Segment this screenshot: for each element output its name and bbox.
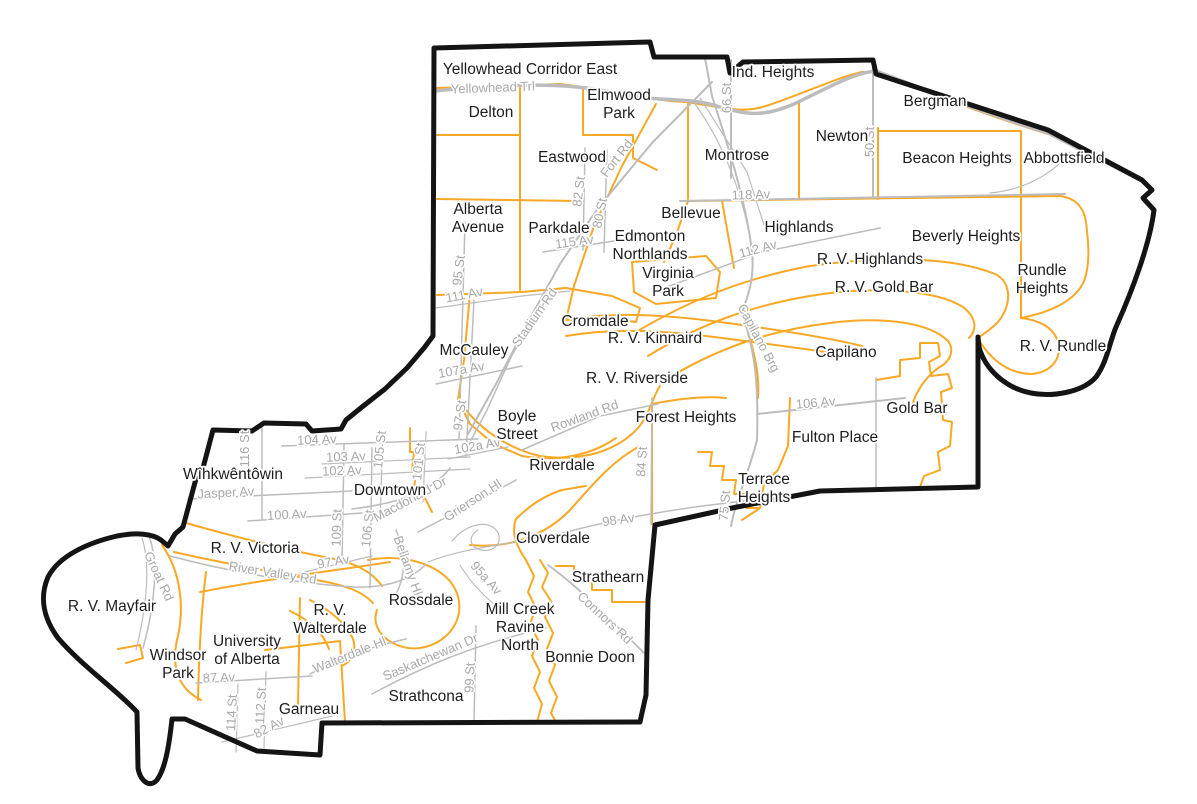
neighborhood-label: Mill CreekRavineNorth	[486, 601, 555, 654]
road-label: 116 St	[237, 430, 252, 467]
neighborhood-label: Parkdale	[528, 220, 589, 237]
road-label: Yellowhead Trl	[451, 79, 536, 97]
neighborhood-label: R. V.Walterdale	[293, 602, 367, 637]
neighborhood-label: Capilano	[815, 344, 876, 361]
neighborhood-boundary-line	[652, 397, 726, 404]
neighborhood-label: Rossdale	[389, 592, 454, 609]
road-label: 109 St	[328, 508, 344, 546]
neighborhood-label: R. V. Highlands	[817, 251, 924, 268]
neighborhood-label: VirginiaPark	[642, 265, 694, 300]
neighborhood-boundary-line	[118, 645, 143, 663]
road-label: 99 St	[461, 662, 478, 693]
neighborhood-label: Gold Bar	[886, 400, 947, 417]
neighborhood-label: Bergman	[904, 93, 967, 110]
neighborhood-label: Cloverdale	[516, 530, 590, 547]
neighborhood-label: Yellowhead Corridor East	[443, 61, 618, 78]
neighborhood-label: Cromdale	[561, 313, 628, 330]
neighborhood-boundary-line	[566, 104, 656, 320]
neighborhood-label: Beacon Heights	[902, 150, 1012, 167]
neighborhood-label: R. V. Gold Bar	[835, 279, 934, 296]
road-label: Rowland Rd	[549, 397, 621, 435]
road-label: 98 Av	[601, 510, 636, 529]
road-label: 84 St	[633, 446, 650, 478]
road-label: 66 St	[719, 82, 734, 113]
neighborhood-label: EdmontonNorthlands	[613, 228, 688, 263]
road-label: Bellamy Hl	[391, 534, 426, 598]
neighborhood-label: R. V. Riverside	[586, 370, 688, 387]
road-label: 95a Av	[468, 558, 506, 598]
road-label: 105 St	[370, 430, 389, 469]
road-label: 118 Av	[731, 186, 771, 202]
neighborhood-label: Bellevue	[661, 205, 720, 222]
neighborhood-label: TerraceHeights	[738, 471, 791, 506]
edmonton-neighbourhood-map: Yellowhead Trl66 StFort Rd50 St118 Av82 …	[0, 0, 1197, 804]
road-label: River Valley Rd	[228, 558, 318, 587]
road-label: Walterdale Hl	[311, 633, 389, 676]
neighborhood-label: Forest Heights	[636, 409, 737, 426]
neighborhood-label: McCauley	[440, 342, 509, 359]
neighborhood-label: Delton	[469, 104, 514, 121]
road-label: Grierson Hl	[441, 476, 504, 524]
neighborhood-label: Ind. Heights	[732, 64, 815, 81]
neighborhood-label: Beverly Heights	[912, 228, 1021, 245]
neighborhood-label: Newton	[816, 128, 869, 145]
neighborhood-label: R. V. Mayfair	[68, 598, 156, 615]
map-canvas: Yellowhead Trl66 StFort Rd50 St118 Av82 …	[0, 0, 1197, 804]
neighborhood-boundary-line	[298, 598, 300, 706]
road-label: 100 Av	[267, 506, 308, 523]
neighborhood-boundary-line	[913, 368, 938, 403]
road-label: 114 St	[223, 694, 240, 732]
neighborhood-label: Highlands	[765, 219, 834, 236]
neighborhood-boundary-line	[722, 201, 734, 268]
neighborhood-label: BoyleStreet	[496, 408, 538, 443]
neighborhood-label: Riverdale	[529, 457, 594, 474]
road-label: 95 St	[449, 254, 468, 286]
road-label: 101 St	[409, 442, 428, 481]
neighborhood-label: Universityof Alberta	[213, 633, 281, 668]
road-label: 82 St	[569, 175, 588, 207]
neighborhood-label: Strathearn	[572, 569, 644, 586]
neighborhood-label: Montrose	[705, 147, 770, 164]
road-label: 75 St	[716, 489, 734, 521]
road-label: 106 Av	[795, 393, 836, 411]
neighborhood-label: R. V. Rundle	[1020, 338, 1106, 355]
neighborhood-label: Eastwood	[538, 149, 606, 166]
road-line	[452, 524, 499, 550]
road-label: 104 Av	[297, 431, 338, 447]
neighborhood-label: Wîhkwêntôwin	[183, 466, 283, 483]
neighborhood-label: R. V. Victoria	[211, 540, 300, 557]
neighborhood-label: Fulton Place	[792, 429, 878, 446]
neighborhood-label: Downtown	[354, 482, 426, 499]
neighborhood-label: Garneau	[279, 701, 339, 718]
neighborhood-label: AlbertaAvenue	[452, 201, 504, 236]
road-label: Capilano Brg	[735, 301, 784, 374]
road-label: 97 St	[450, 399, 469, 432]
road-label: 102 Av	[322, 462, 363, 478]
neighborhood-label: Abbottsfield	[1024, 150, 1105, 167]
road-label: 80 St	[589, 196, 610, 229]
neighborhood-label: Bonnie Doon	[545, 649, 635, 666]
road-label: 87 Av	[202, 669, 235, 685]
neighborhood-boundary-line	[540, 560, 557, 722]
neighborhood-label: Strathcona	[389, 688, 464, 705]
neighborhood-label: RundleHeights	[1016, 262, 1069, 297]
neighborhood-label: ElmwoodPark	[587, 87, 651, 122]
neighborhood-label: R. V. Kinnaird	[608, 330, 702, 347]
neighborhood-boundary-line	[660, 320, 951, 383]
road-label: Jasper Av	[197, 484, 255, 502]
road-label: Connors Rd	[575, 589, 636, 647]
road-label: 112 Av	[737, 236, 779, 261]
road-line	[692, 100, 752, 248]
